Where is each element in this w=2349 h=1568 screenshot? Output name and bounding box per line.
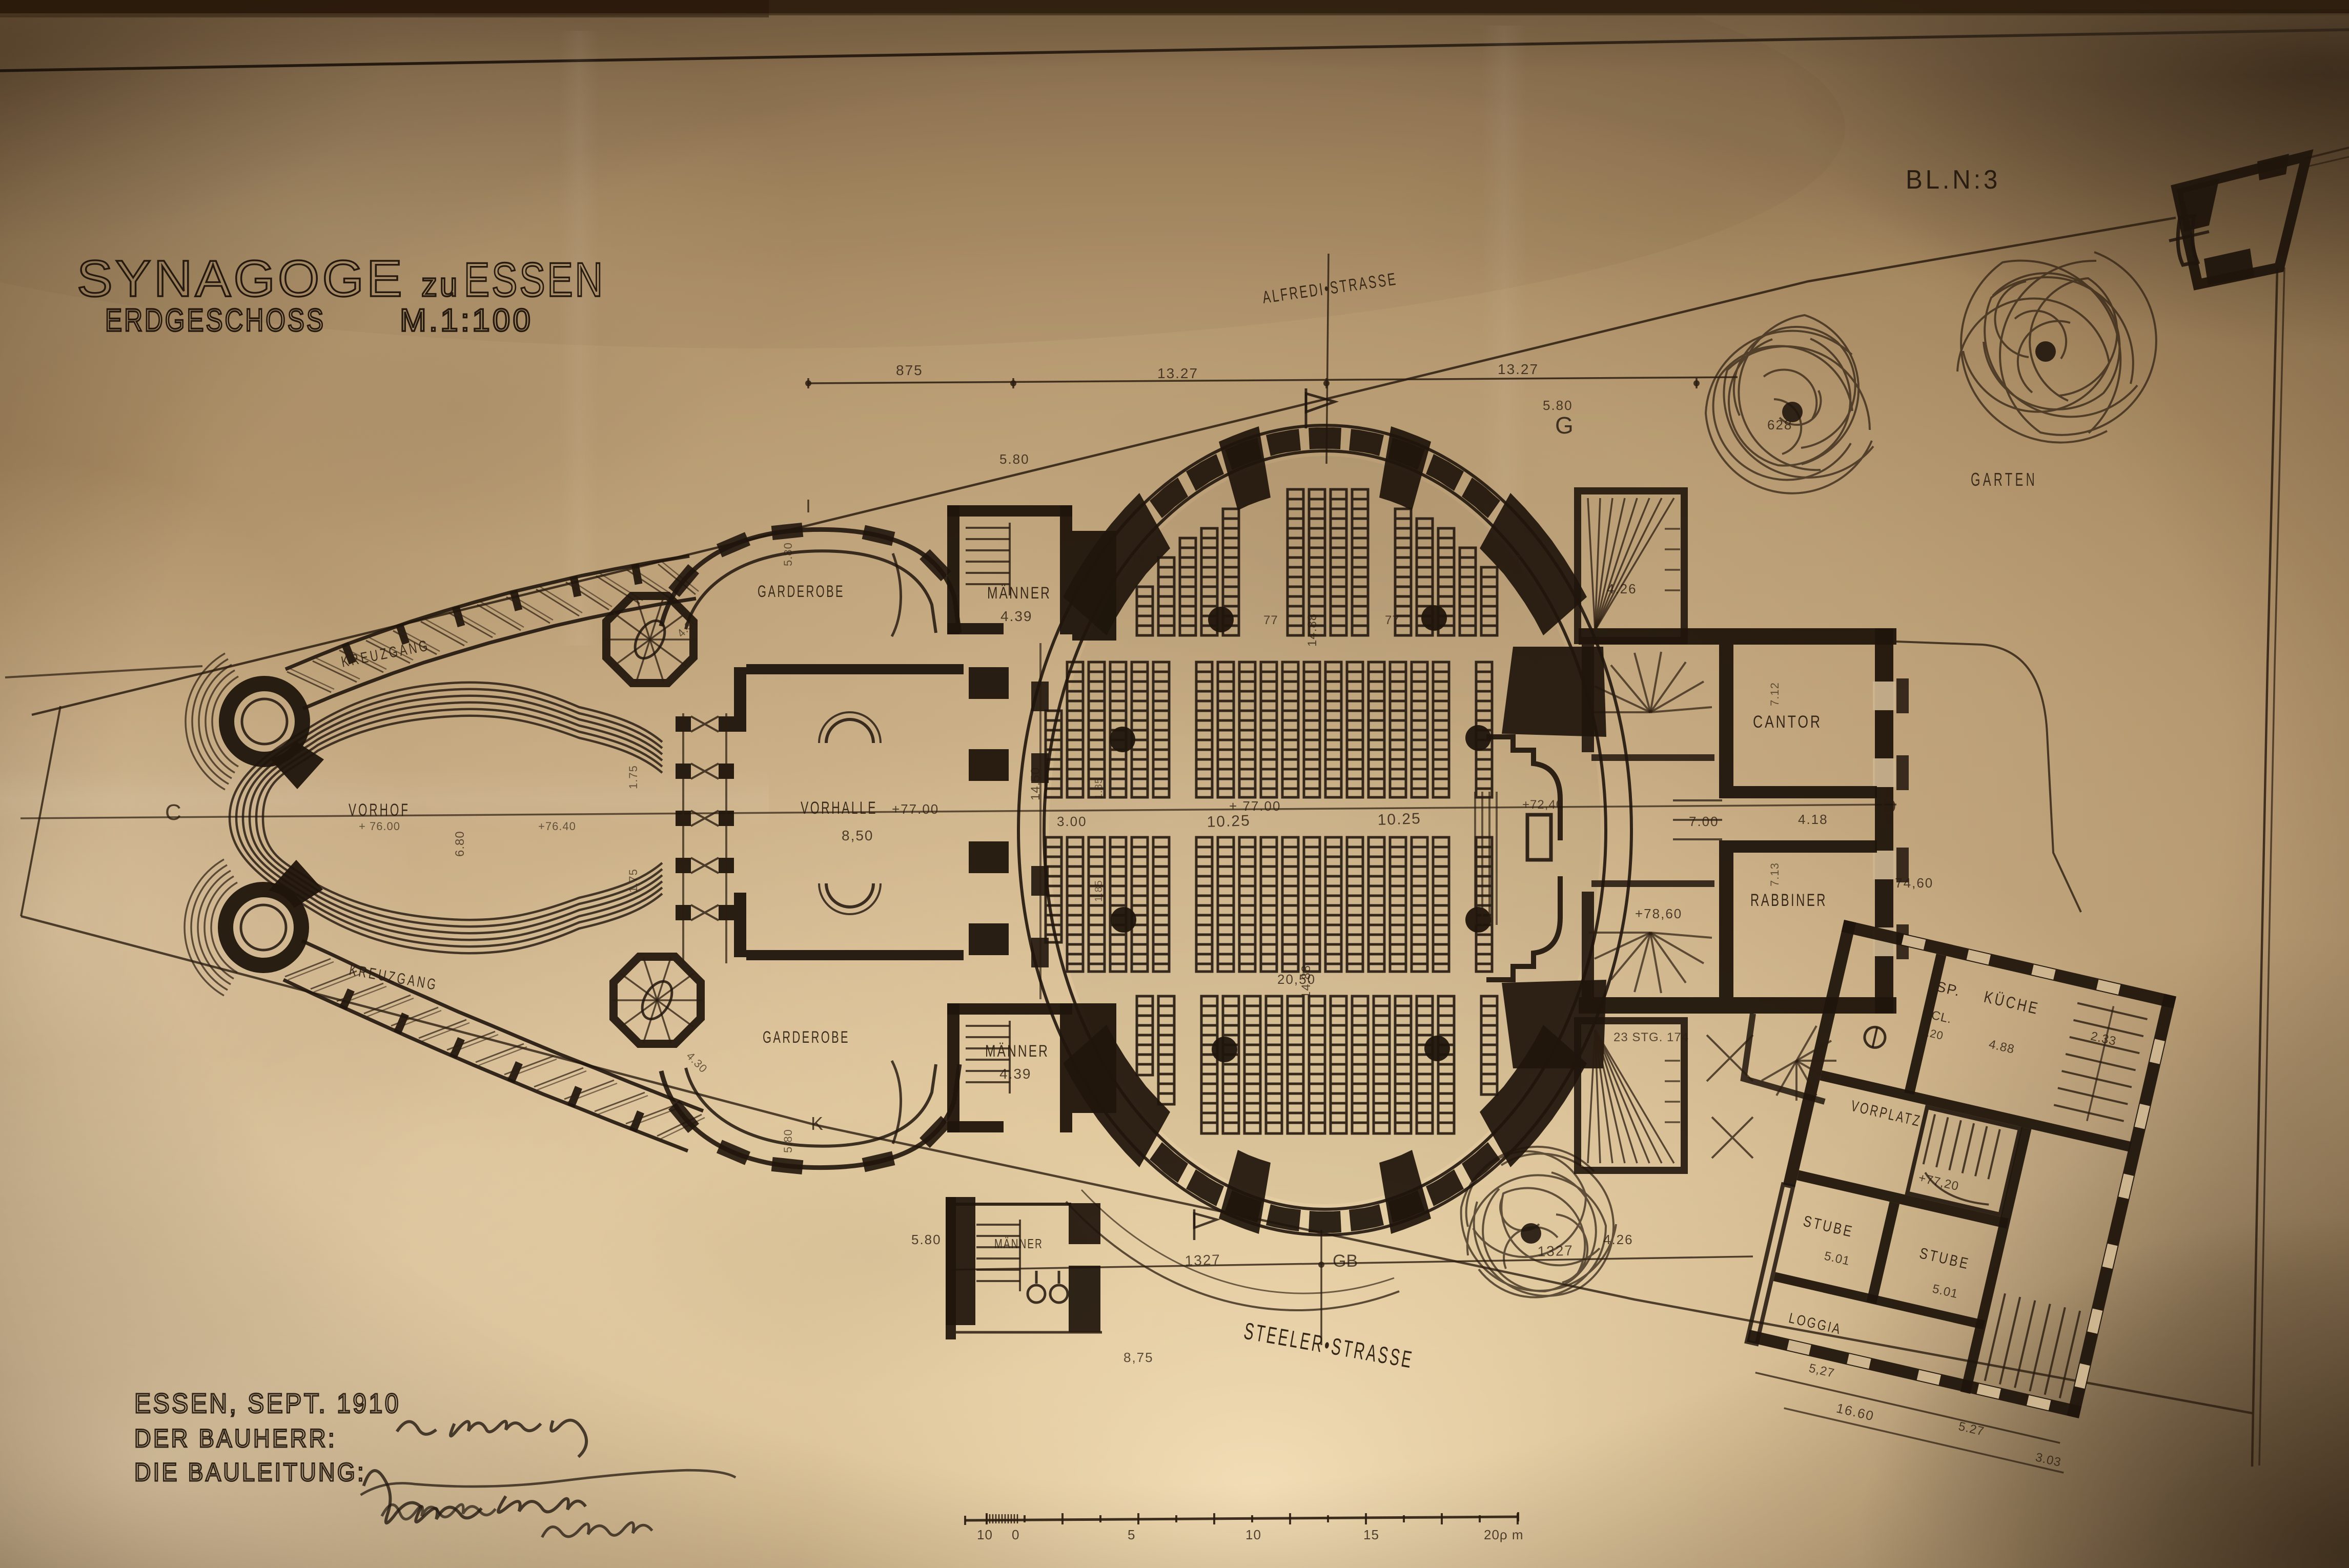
svg-text:DIE BAULEITUNG:: DIE BAULEITUNG: bbox=[134, 1458, 366, 1487]
svg-text:13.27: 13.27 bbox=[1498, 361, 1539, 377]
svg-text:ERDGESCHOSS: ERDGESCHOSS bbox=[105, 303, 325, 338]
svg-text:+77.00: +77.00 bbox=[892, 801, 939, 817]
svg-text:6.80: 6.80 bbox=[453, 831, 467, 857]
svg-text:GARTEN: GARTEN bbox=[1971, 469, 2037, 490]
svg-text:1.85: 1.85 bbox=[1093, 880, 1105, 902]
svg-text:zu: zu bbox=[421, 265, 460, 303]
svg-text:GB: GB bbox=[1333, 1251, 1358, 1271]
svg-text:77: 77 bbox=[1507, 553, 1522, 567]
svg-text:4.39: 4.39 bbox=[1000, 608, 1033, 624]
svg-text:+72,40: +72,40 bbox=[1522, 798, 1563, 812]
svg-text:3.00: 3.00 bbox=[1057, 814, 1087, 829]
svg-text:14.88: 14.88 bbox=[1299, 965, 1313, 998]
svg-text:1.85: 1.85 bbox=[1093, 777, 1105, 799]
svg-text:RABBINER: RABBINER bbox=[1750, 891, 1827, 910]
svg-text:10.25: 10.25 bbox=[1377, 810, 1421, 829]
svg-text:7.00: 7.00 bbox=[1689, 814, 1719, 829]
svg-text:ESSEN, SEPT. 1910: ESSEN, SEPT. 1910 bbox=[134, 1388, 401, 1419]
svg-text:M.1:100: M.1:100 bbox=[400, 303, 533, 338]
svg-text:SYNAGOGE: SYNAGOGE bbox=[77, 250, 405, 307]
svg-text:MÄNNER: MÄNNER bbox=[987, 584, 1051, 602]
svg-text:8,75: 8,75 bbox=[1124, 1350, 1154, 1365]
svg-text:4.26: 4.26 bbox=[1603, 1232, 1633, 1247]
svg-text:GARDEROBE: GARDEROBE bbox=[758, 582, 845, 601]
svg-text:ESSEN: ESSEN bbox=[464, 253, 605, 306]
svg-text:VORHALLE: VORHALLE bbox=[801, 798, 877, 818]
svg-text:20ρ m: 20ρ m bbox=[1484, 1527, 1524, 1542]
svg-text:14.88: 14.88 bbox=[1305, 613, 1319, 647]
svg-text:1.75: 1.75 bbox=[627, 765, 640, 789]
svg-text:VORHOF: VORHOF bbox=[349, 800, 410, 820]
svg-text:BL.N:3: BL.N:3 bbox=[1906, 165, 2000, 195]
svg-text:5.80: 5.80 bbox=[782, 542, 794, 566]
svg-text:C: C bbox=[165, 800, 181, 825]
svg-text:5.80: 5.80 bbox=[999, 451, 1030, 467]
svg-text:4.18: 4.18 bbox=[1798, 812, 1828, 827]
svg-text:77: 77 bbox=[1385, 613, 1400, 627]
svg-text:14.50: 14.50 bbox=[1029, 767, 1043, 800]
svg-text:13.27: 13.27 bbox=[1157, 365, 1198, 381]
svg-text:MÄNNER: MÄNNER bbox=[985, 1042, 1049, 1060]
svg-text:5.80: 5.80 bbox=[1543, 398, 1573, 413]
svg-text:1.75: 1.75 bbox=[627, 869, 640, 893]
svg-text:+ 77.00: + 77.00 bbox=[1229, 798, 1281, 814]
svg-text:GARDEROBE: GARDEROBE bbox=[763, 1028, 850, 1046]
svg-text:5.80: 5.80 bbox=[782, 1129, 794, 1153]
svg-text:+74,60: +74,60 bbox=[1886, 875, 1933, 891]
svg-text:MÄNNER: MÄNNER bbox=[994, 1236, 1043, 1251]
svg-text:7.13: 7.13 bbox=[1768, 862, 1781, 886]
svg-text:77: 77 bbox=[1263, 613, 1278, 627]
svg-text:10: 10 bbox=[977, 1527, 993, 1542]
svg-text:0: 0 bbox=[1012, 1527, 1019, 1542]
svg-text:CANTOR: CANTOR bbox=[1753, 712, 1822, 732]
svg-text:77: 77 bbox=[1130, 553, 1145, 567]
svg-text:7.12: 7.12 bbox=[1768, 682, 1781, 706]
svg-text:875: 875 bbox=[896, 362, 923, 378]
svg-text:8,50: 8,50 bbox=[842, 828, 874, 843]
svg-text:23 STG. 174: 23 STG. 174 bbox=[1613, 1030, 1689, 1044]
svg-text:4.39: 4.39 bbox=[999, 1066, 1032, 1082]
svg-text:1327: 1327 bbox=[1184, 1252, 1221, 1269]
svg-text:10.25: 10.25 bbox=[1207, 812, 1251, 831]
svg-text:G: G bbox=[1555, 412, 1574, 439]
svg-text:DER BAUHERR:: DER BAUHERR: bbox=[134, 1424, 337, 1453]
svg-text:K: K bbox=[811, 1113, 823, 1134]
svg-text:5.80: 5.80 bbox=[911, 1232, 942, 1247]
svg-text:15: 15 bbox=[1363, 1527, 1379, 1542]
svg-text:D: D bbox=[1880, 794, 1896, 819]
svg-text:10: 10 bbox=[1245, 1527, 1261, 1542]
svg-text:+78,60: +78,60 bbox=[1635, 906, 1682, 921]
svg-text:4.26: 4.26 bbox=[1607, 581, 1637, 596]
svg-text:+76.40: +76.40 bbox=[538, 820, 576, 833]
svg-text:+ 76.00: + 76.00 bbox=[359, 820, 400, 833]
svg-text:I: I bbox=[806, 496, 811, 517]
svg-text:5: 5 bbox=[1128, 1527, 1135, 1542]
svg-text:628: 628 bbox=[1767, 417, 1792, 432]
svg-text:1327: 1327 bbox=[1537, 1243, 1574, 1260]
